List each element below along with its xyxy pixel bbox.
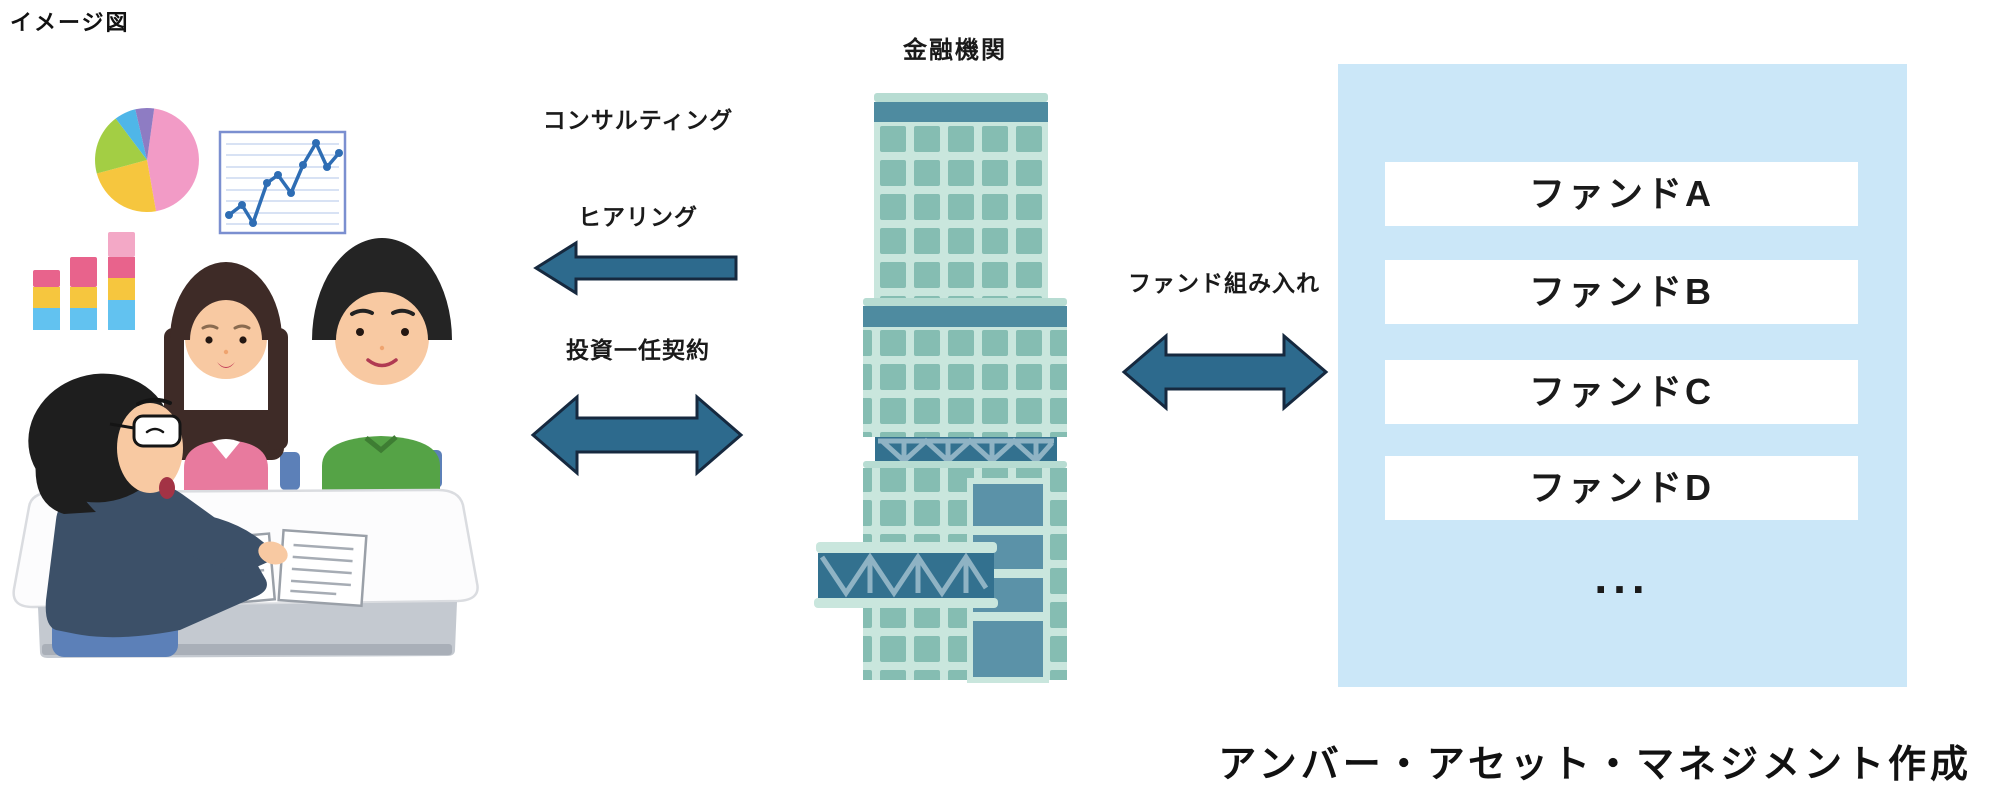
arrow-double-mandate [529,391,745,479]
fund-box-b: ファンドB [1385,260,1858,324]
label-consulting: コンサルティング [536,101,740,135]
fund-box-a: ファンドA [1385,162,1858,226]
label-mandate: 投資一任契約 [536,331,740,365]
document-right [279,530,367,606]
more-funds-ellipsis: ... [1338,550,1907,604]
fund-box-d: ファンドD [1385,456,1858,520]
chair-back-left [280,452,300,490]
bar-chart-icon [33,232,135,330]
label-fund-inclusion: ファンド組み入れ [1118,264,1330,298]
line-chart-icon [220,132,345,233]
diagram-canvas: イメージ図 [0,0,2000,808]
pie-chart-icon [95,108,199,212]
diagram-caption: イメージ図 [10,5,130,37]
arrow-double-fund [1120,329,1330,415]
credit-text: アンバー・アセット・マネジメント作成 [1170,733,1972,788]
glasses-icon [134,416,180,446]
arrow-left-hearing [533,240,739,296]
fund-panel: ファンドA ファンドB ファンドC ファンドD ... [1338,64,1907,687]
fund-box-c: ファンドC [1385,360,1858,424]
label-hearing: ヒアリング [536,198,740,232]
consulting-scene-illustration [0,40,540,720]
female-client [164,262,288,490]
male-client [312,238,452,490]
financial-institution-building [808,20,1072,700]
